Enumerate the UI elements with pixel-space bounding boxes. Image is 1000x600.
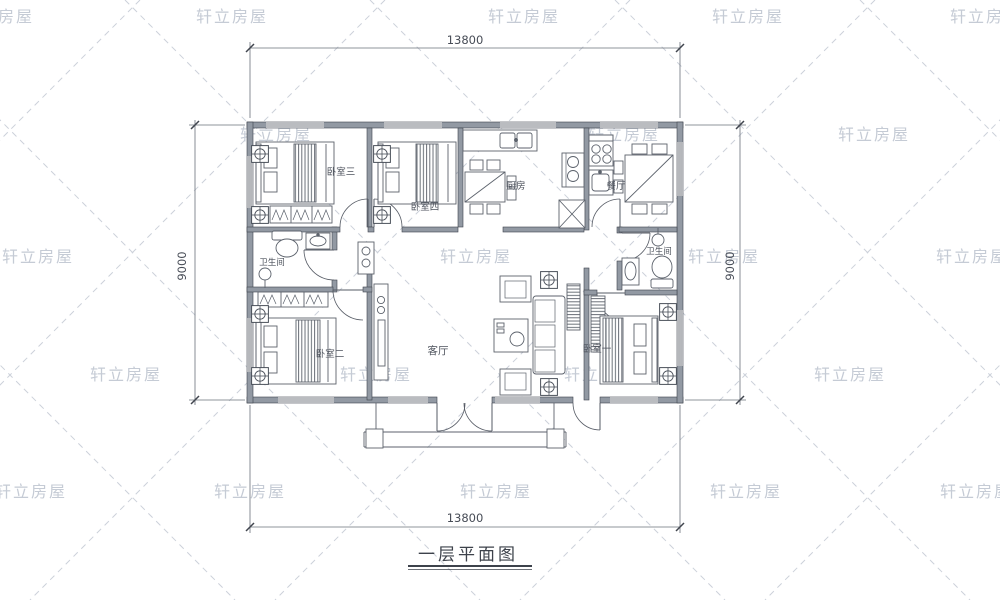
sofa xyxy=(533,296,565,374)
chair xyxy=(632,204,647,214)
watermark-lattice-line xyxy=(370,0,970,600)
floor-drain xyxy=(259,268,271,288)
door-bedroom3 xyxy=(340,199,368,227)
watermark-text: 轩立房屋 xyxy=(90,365,162,384)
door-bedroom1-exterior xyxy=(573,403,600,430)
window xyxy=(677,142,683,196)
watermark-text: 轩立房屋 xyxy=(2,247,74,266)
window xyxy=(384,122,442,128)
flue xyxy=(559,200,585,228)
watermark-text: 轩立房屋 xyxy=(936,247,1000,266)
chair xyxy=(470,204,483,214)
title-block: 一层平面图 xyxy=(408,545,532,570)
toilet xyxy=(651,256,673,288)
watermark-text: 轩立房屋 xyxy=(950,7,1000,26)
door-entry-double xyxy=(437,403,492,431)
dim-right-value: 9000 xyxy=(723,251,737,280)
door-bedroom2 xyxy=(333,290,363,320)
floorplan-page: 轩立房屋轩立房屋轩立房屋轩立房屋轩立房屋轩立房屋轩立房屋轩立房屋轩立房屋轩立房屋… xyxy=(0,0,1000,600)
bed-blanket xyxy=(294,144,316,202)
watermark-text: 轩立房屋 xyxy=(838,125,910,144)
watermark-text: 轩立房屋 xyxy=(196,7,268,26)
column-icon xyxy=(252,368,269,385)
sink xyxy=(622,258,639,285)
watermark-lattice-line xyxy=(0,0,480,600)
room-label-bedroom1: 卧室一 xyxy=(583,343,612,355)
window xyxy=(278,397,334,403)
window xyxy=(610,397,658,403)
chair xyxy=(470,160,483,170)
coffee-table xyxy=(494,319,528,352)
room-label-living: 客厅 xyxy=(428,344,449,357)
watermark-lattice-line xyxy=(125,0,725,600)
door-dining xyxy=(592,199,620,227)
dim-top-value: 13800 xyxy=(447,33,484,47)
watermark-lattice-line xyxy=(860,0,1000,600)
chair xyxy=(652,204,667,214)
window xyxy=(500,122,556,128)
chair xyxy=(487,204,500,214)
watermark-lattice-line xyxy=(765,0,1000,600)
window xyxy=(247,156,253,208)
tv-cabinet xyxy=(374,284,388,380)
watermark-text: 轩立房屋 xyxy=(440,247,512,266)
watermark-lattice-line xyxy=(615,0,1000,600)
kitchen-furniture xyxy=(463,130,585,228)
chair xyxy=(652,144,667,154)
column-icon xyxy=(541,272,558,289)
dim-left-value: 9000 xyxy=(175,251,189,280)
watermark-lattice-line xyxy=(0,0,140,600)
bathroom-right-fixtures xyxy=(622,228,673,288)
column-icon xyxy=(660,368,677,385)
toilet xyxy=(272,231,302,257)
hall-cabinet xyxy=(358,242,374,274)
side-cabinet xyxy=(567,284,580,330)
watermark-text: 轩立房屋 xyxy=(712,7,784,26)
column-icon xyxy=(252,207,269,224)
column-icon xyxy=(252,306,269,323)
window xyxy=(600,122,658,128)
window xyxy=(388,397,428,403)
room-label-bathroom-left: 卫生间 xyxy=(259,257,285,268)
watermark-text: 轩立房屋 xyxy=(814,365,886,384)
bedroom1-furniture xyxy=(591,296,658,384)
column-icon xyxy=(541,379,558,396)
bed-blanket xyxy=(416,144,438,202)
watermark-text: 轩立房屋 xyxy=(710,482,782,501)
room-label-bedroom2: 卧室二 xyxy=(316,348,345,360)
column-icon xyxy=(252,146,269,163)
watermark-text: 轩立房屋 xyxy=(0,7,34,26)
window xyxy=(266,122,324,128)
room-label-bathroom-right: 卫生间 xyxy=(646,246,672,257)
window xyxy=(247,318,253,372)
watermark-lattice-line xyxy=(0,0,235,600)
column-icon xyxy=(660,304,677,321)
dim-bottom-value: 13800 xyxy=(447,511,484,525)
door-bathroom-left xyxy=(304,250,334,280)
window xyxy=(677,310,683,366)
chair xyxy=(487,160,500,170)
room-label-dining: 餐厅 xyxy=(606,180,626,192)
floorplan-canvas: 轩立房屋轩立房屋轩立房屋轩立房屋轩立房屋轩立房屋轩立房屋轩立房屋轩立房屋轩立房屋… xyxy=(0,0,1000,600)
room-label-bedroom3: 卧室三 xyxy=(327,166,356,178)
stove xyxy=(562,153,584,187)
chair xyxy=(614,161,623,174)
page-title: 一层平面图 xyxy=(418,545,518,565)
watermark-text: 轩立房屋 xyxy=(0,482,67,501)
sink xyxy=(306,233,330,249)
room-label-kitchen: 厨房 xyxy=(506,180,525,192)
watermark-text: 轩立房屋 xyxy=(460,482,532,501)
column-icon xyxy=(374,207,391,224)
watermark-text: 轩立房屋 xyxy=(488,7,560,26)
room-label-bedroom4: 卧室四 xyxy=(411,201,440,213)
stove xyxy=(589,135,613,166)
dining-furniture xyxy=(589,135,673,214)
watermark-text: 轩立房屋 xyxy=(940,482,1000,501)
column-icon xyxy=(374,146,391,163)
window xyxy=(495,397,540,403)
chair xyxy=(632,144,647,154)
